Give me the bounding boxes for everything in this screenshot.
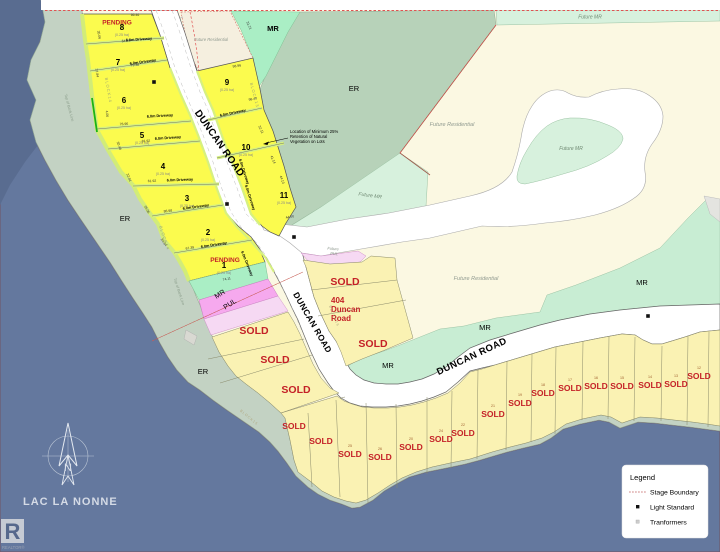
- svg-text:(0.25 ha): (0.25 ha): [117, 106, 131, 110]
- svg-text:SOLD: SOLD: [508, 398, 532, 408]
- svg-text:Future MR: Future MR: [559, 146, 583, 152]
- svg-text:SOLD: SOLD: [558, 383, 582, 393]
- svg-text:SOLD: SOLD: [358, 338, 388, 350]
- svg-text:64.27: 64.27: [122, 39, 131, 44]
- svg-text:SOLD: SOLD: [584, 381, 608, 391]
- svg-text:SOLD: SOLD: [309, 436, 333, 446]
- svg-text:SOLD: SOLD: [687, 371, 711, 381]
- svg-text:ER: ER: [198, 367, 209, 376]
- svg-text:8: 8: [120, 23, 125, 32]
- svg-text:PUL: PUL: [330, 251, 338, 257]
- svg-text:(0.25 ha): (0.25 ha): [156, 172, 170, 176]
- svg-text:SOLD: SOLD: [399, 442, 423, 452]
- svg-text:Vegetation on Lots: Vegetation on Lots: [290, 139, 325, 144]
- svg-text:Legend: Legend: [630, 473, 655, 482]
- svg-text:Stage Boundary: Stage Boundary: [650, 490, 699, 497]
- svg-text:17: 17: [568, 378, 572, 382]
- svg-text:21: 21: [491, 404, 495, 408]
- svg-text:SOLD: SOLD: [330, 276, 360, 288]
- svg-text:SOLD: SOLD: [281, 384, 311, 396]
- svg-text:22: 22: [461, 423, 465, 427]
- svg-text:SOLD: SOLD: [610, 381, 634, 391]
- svg-text:MR: MR: [382, 361, 394, 370]
- svg-text:Light Standard: Light Standard: [650, 505, 694, 512]
- svg-text:MR: MR: [636, 278, 648, 287]
- svg-text:(0.25 ha): (0.25 ha): [217, 271, 231, 275]
- svg-text:10: 10: [242, 143, 251, 152]
- svg-text:16: 16: [594, 376, 598, 380]
- svg-text:R: R: [5, 519, 21, 544]
- svg-text:(0.25 ha): (0.25 ha): [239, 153, 253, 157]
- svg-text:SOLD: SOLD: [282, 421, 306, 431]
- svg-text:SOLD: SOLD: [239, 325, 269, 337]
- svg-text:SOLD: SOLD: [481, 409, 505, 419]
- svg-text:(0.25 ha): (0.25 ha): [277, 201, 291, 205]
- svg-text:SOLD: SOLD: [338, 449, 362, 459]
- svg-text:(0.25 ha): (0.25 ha): [201, 238, 215, 242]
- svg-text:66.46: 66.46: [131, 13, 140, 17]
- svg-text:19: 19: [518, 393, 522, 397]
- svg-text:76.96: 76.96: [120, 122, 129, 126]
- svg-text:SOLD: SOLD: [429, 434, 453, 444]
- svg-text:MR: MR: [267, 24, 279, 33]
- svg-text:(0.25 ha): (0.25 ha): [111, 68, 125, 72]
- svg-text:SOLD: SOLD: [260, 354, 290, 366]
- svg-text:4.06: 4.06: [105, 110, 110, 117]
- svg-text:Future Residential: Future Residential: [430, 122, 475, 128]
- svg-text:14: 14: [648, 375, 652, 379]
- svg-text:4: 4: [161, 162, 166, 171]
- svg-text:SOLD: SOLD: [531, 388, 555, 398]
- svg-text:9: 9: [225, 78, 230, 87]
- svg-text:N: N: [64, 462, 72, 474]
- svg-text:61.92: 61.92: [148, 179, 157, 183]
- svg-text:81.92: 81.92: [142, 139, 151, 143]
- svg-text:SOLD: SOLD: [368, 452, 392, 462]
- svg-text:REALTOR®: REALTOR®: [2, 545, 25, 550]
- svg-text:12: 12: [697, 366, 701, 370]
- svg-text:(0.25 ha): (0.25 ha): [115, 33, 129, 37]
- svg-text:Future Residential: Future Residential: [194, 37, 229, 42]
- svg-text:2: 2: [206, 228, 211, 237]
- svg-text:79.38: 79.38: [131, 63, 140, 68]
- svg-text:(0.25 ha): (0.25 ha): [220, 88, 234, 92]
- svg-text:SOLD: SOLD: [451, 428, 475, 438]
- svg-text:18: 18: [541, 383, 545, 387]
- svg-text:20: 20: [409, 437, 413, 441]
- svg-text:26: 26: [378, 447, 382, 451]
- svg-text:6: 6: [122, 96, 127, 105]
- svg-text:7: 7: [116, 58, 121, 67]
- svg-text:25: 25: [348, 444, 352, 448]
- svg-text:11: 11: [280, 191, 289, 200]
- svg-text:13: 13: [674, 374, 678, 378]
- svg-text:Tranformers: Tranformers: [650, 520, 687, 527]
- svg-text:Future Residential: Future Residential: [454, 276, 499, 282]
- svg-text:SOLD: SOLD: [664, 379, 688, 389]
- svg-text:3: 3: [185, 194, 190, 203]
- svg-text:1: 1: [222, 261, 227, 270]
- svg-text:ER: ER: [349, 84, 360, 93]
- svg-text:Future MR: Future MR: [578, 15, 602, 21]
- svg-text:SOLD: SOLD: [638, 380, 662, 390]
- svg-text:ER: ER: [120, 214, 131, 223]
- svg-text:404: 404: [331, 296, 345, 305]
- svg-text:LAC LA NONNE: LAC LA NONNE: [23, 496, 118, 508]
- svg-text:PENDING: PENDING: [102, 20, 132, 27]
- svg-text:15: 15: [620, 376, 624, 380]
- svg-text:MR: MR: [479, 323, 491, 332]
- svg-text:24: 24: [439, 429, 443, 433]
